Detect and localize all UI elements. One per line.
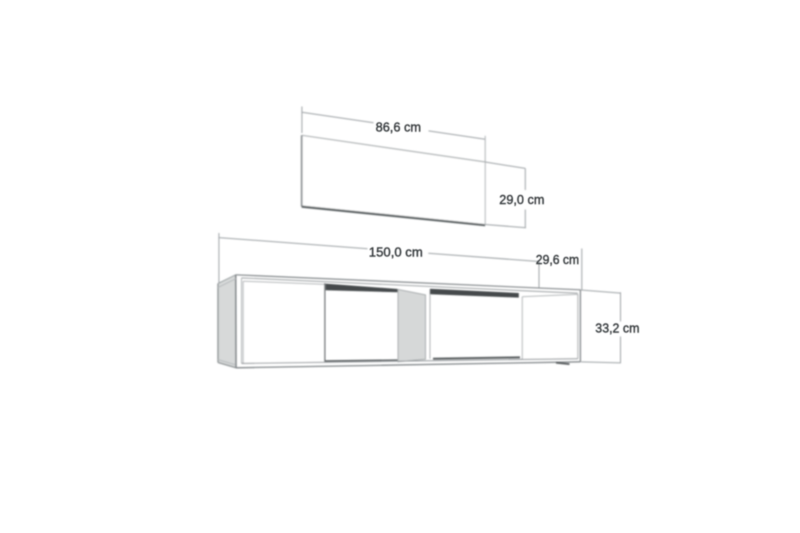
svg-text:86,6 cm: 86,6 cm xyxy=(376,120,421,135)
svg-text:29,0 cm: 29,0 cm xyxy=(499,192,544,207)
svg-text:33,2 cm: 33,2 cm xyxy=(595,321,639,336)
svg-text:150,0 cm: 150,0 cm xyxy=(369,244,423,259)
svg-text:29,6 cm: 29,6 cm xyxy=(536,252,579,267)
